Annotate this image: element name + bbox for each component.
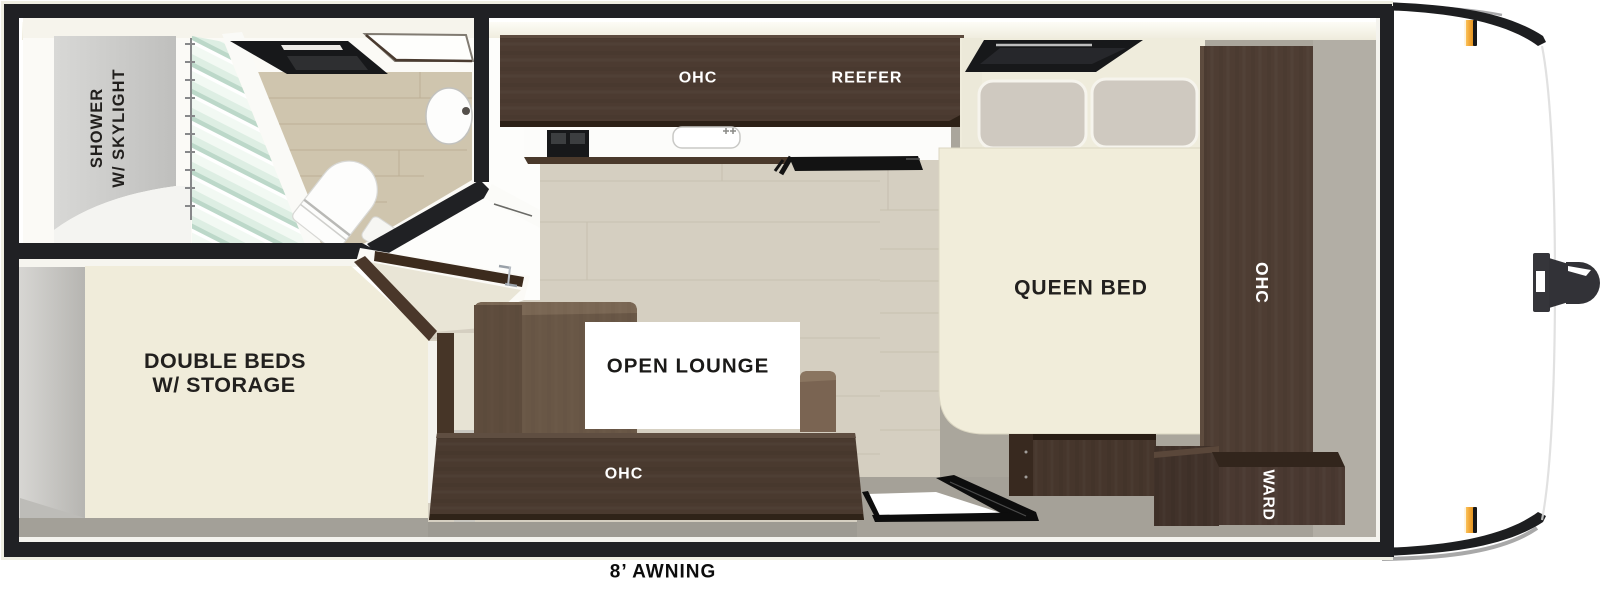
- svg-text:WARD: WARD: [1260, 470, 1277, 521]
- svg-text:OPEN LOUNGE: OPEN LOUNGE: [607, 355, 770, 378]
- svg-text:REEFER: REEFER: [832, 70, 903, 87]
- svg-text:SHOWER: SHOWER: [88, 88, 106, 168]
- svg-text:8’ AWNING: 8’ AWNING: [610, 562, 716, 583]
- svg-text:QUEEN BED: QUEEN BED: [1014, 277, 1148, 300]
- svg-text:OHC: OHC: [679, 70, 718, 87]
- svg-text:W/ STORAGE: W/ STORAGE: [152, 373, 295, 397]
- svg-text:OHC: OHC: [605, 466, 644, 483]
- svg-text:W/ SKYLIGHT: W/ SKYLIGHT: [110, 68, 128, 187]
- svg-text:DOUBLE BEDS: DOUBLE BEDS: [144, 349, 306, 373]
- svg-text:OHC: OHC: [1252, 262, 1272, 304]
